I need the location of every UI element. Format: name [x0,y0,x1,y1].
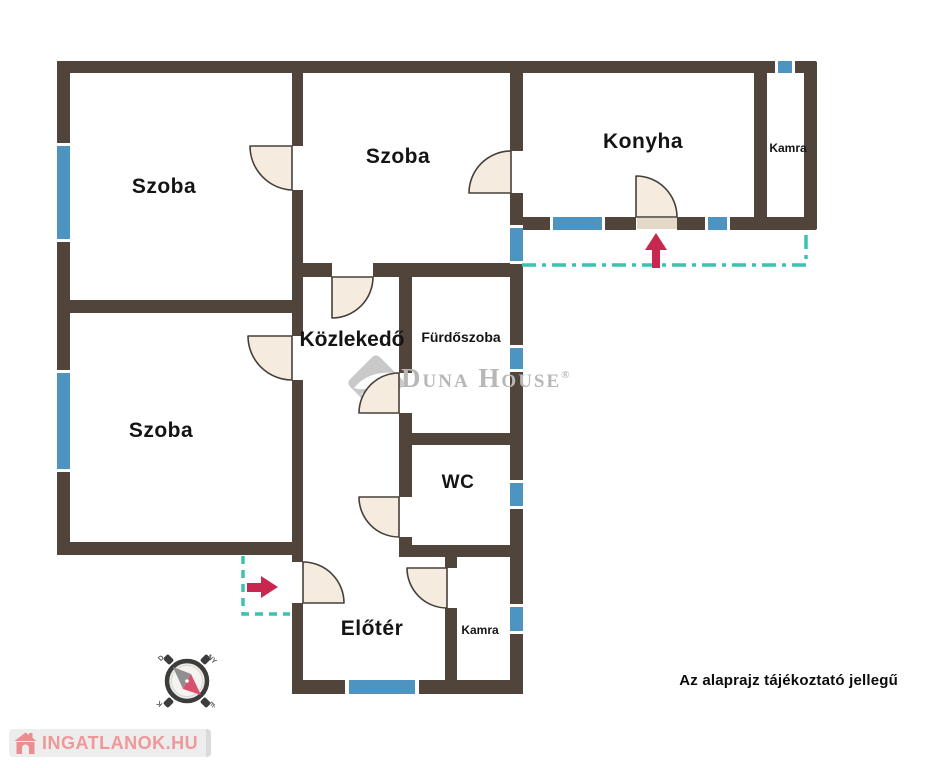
window-left-lower [57,370,70,472]
wall-segment [399,545,523,557]
room-label-eloter: Előtér [341,617,404,641]
wall-segment [57,61,817,73]
room-label-kamra-upper: Kamra [769,141,806,155]
ingatlanok-logo-text: INGATLANOK.HU [42,733,198,754]
room-label-szoba-3: Szoba [129,419,193,443]
wall-segment [677,217,707,230]
wall-segment [445,608,457,680]
room-label-szoba-2: Szoba [366,145,430,169]
compass-label-ny: NY [206,654,218,666]
ingatlanok-logo: INGATLANOK.HU [9,729,211,757]
door-arc-wc [359,497,399,537]
disclaimer-text: Az alaprajz tájékoztató jellegű [679,672,898,689]
door-arc-konyha-szoba2 [469,151,511,193]
room-label-szoba-1: Szoba [132,175,196,199]
wall-segment [603,217,636,230]
wall-segment [292,680,347,694]
door-arc-kamra-lower [407,568,447,608]
compass-label-k: K [156,699,165,708]
entrance-arrows [247,233,667,598]
wall-segment [373,263,523,277]
wall-segment [417,680,523,694]
room-label-kozlekedo: Közlekedő [299,328,404,352]
window-szoba2-right [510,225,523,264]
wall-segment [399,433,523,445]
wall-segment [57,542,303,555]
door-arc-szoba3 [248,336,292,380]
window-konyha-wide [550,217,605,230]
compass-label-d: D [157,654,166,663]
wall-segment [292,380,303,562]
door-arc-main-entrance [303,562,344,603]
window-wc [510,480,523,509]
wall-segment [510,61,523,151]
room-label-furdoszoba: Fürdőszoba [421,329,500,345]
wall-segment [445,557,457,568]
room-label-wc: WC [442,472,475,494]
wall-segment [399,413,412,497]
konyha-door-sill [637,218,677,229]
wall-segment [399,266,412,373]
main-entrance-arrow-icon [247,576,278,598]
room-label-konyha: Konyha [603,130,683,154]
wall-segment [292,61,303,146]
window-top-kamra [775,61,795,73]
window-konyha-small [705,217,730,230]
terrace-entrance-arrow-icon [645,233,667,268]
wall-segment [292,263,332,277]
wall-segment [57,61,70,145]
wall-segment [728,217,817,230]
compass-icon: D NY É K [156,654,218,710]
dunahouse-watermark: Duna House® [401,363,569,394]
window-eloter [345,680,419,694]
house-icon [14,732,37,754]
door-arc-konyha-terrace [636,176,677,217]
floorplan-canvas: D NY É K Szoba Szoba Konyha Kamra Szoba … [0,0,928,768]
dunahouse-brand-text: Duna House [401,363,561,393]
door-arc-kozlekedo [332,277,373,318]
registered-mark: ® [561,369,569,381]
window-left-upper [57,143,70,242]
door-arc-szoba1 [250,146,292,190]
wall-segment [510,262,523,347]
wall-segment [57,300,303,313]
wall-segment [754,73,767,217]
room-label-kamra-lower: Kamra [461,623,498,637]
window-kamra-lower [510,604,523,634]
